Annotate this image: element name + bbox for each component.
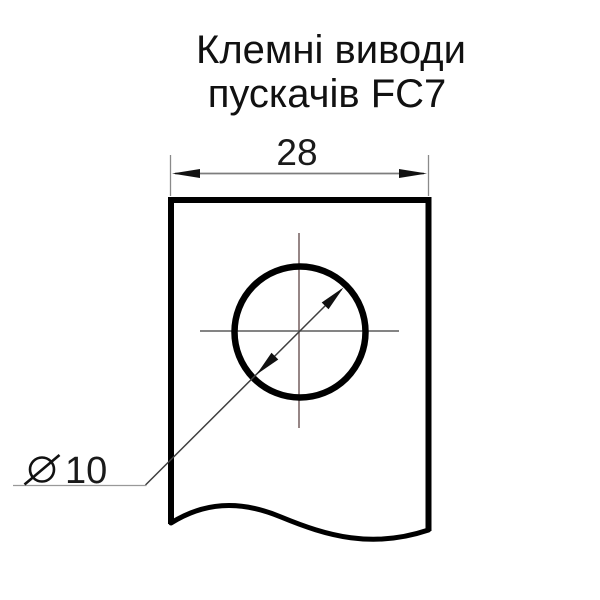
- drawing-svg: Клемні виводи пускачів FC7 28: [0, 0, 600, 600]
- width-dimension-value: 28: [276, 132, 317, 173]
- technical-drawing: Клемні виводи пускачів FC7 28: [0, 0, 600, 600]
- drawing-title-line1: Клемні виводи: [196, 28, 466, 72]
- drawing-title-line2: пускачів FC7: [208, 72, 447, 116]
- diameter-dimension-value: 10: [65, 450, 107, 492]
